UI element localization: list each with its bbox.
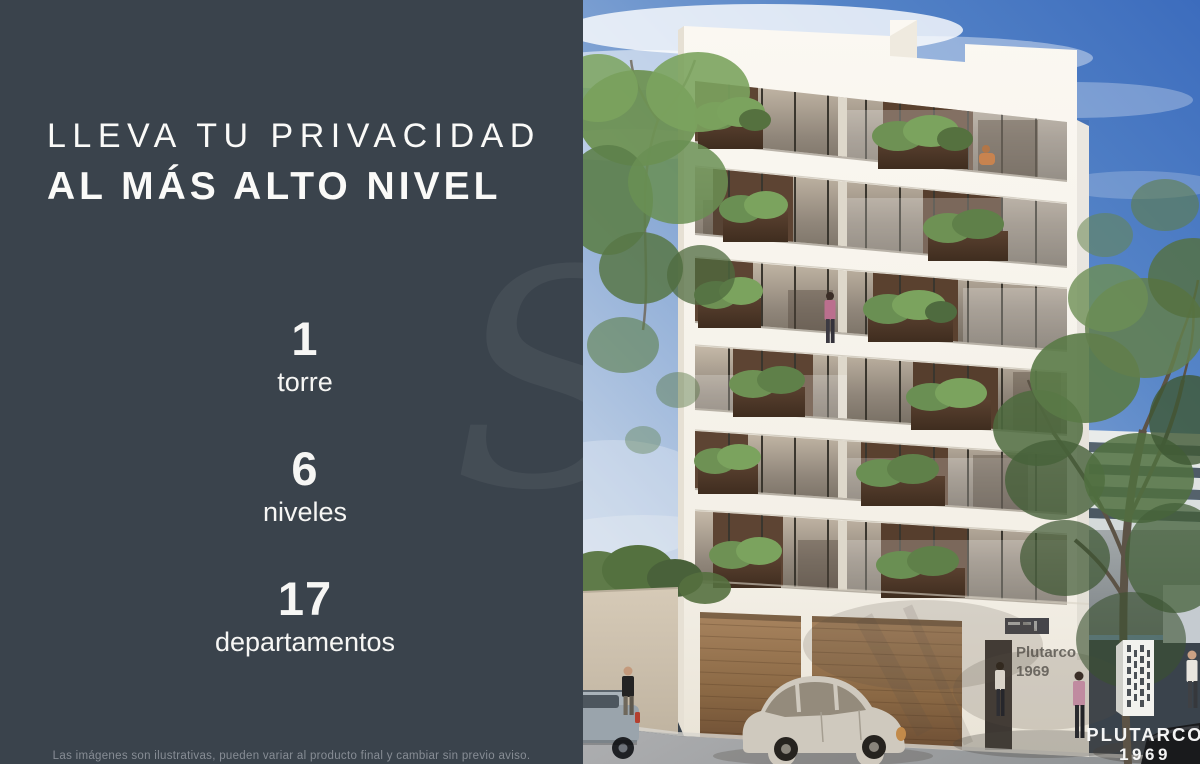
stat-towers-value: 1 [20, 313, 583, 366]
stat-levels-value: 6 [20, 443, 583, 496]
stat-apartments: 17 departamentos [20, 573, 583, 658]
building-render-svg: Plutarco 1969 [583, 0, 1200, 764]
stat-levels: 6 niveles [20, 443, 583, 528]
logo-name: PLUTARCO [1086, 724, 1200, 745]
stats-list: 1 torre 6 niveles 17 departamentos [20, 313, 583, 703]
pedestrian-doorway [995, 662, 1005, 716]
text-panel: S LLEVA TU PRIVACIDAD AL MÁS ALTO NIVEL … [0, 0, 583, 764]
disclaimer-text: Las imágenes son ilustrativas, pueden va… [0, 750, 583, 762]
stat-towers: 1 torre [20, 313, 583, 398]
stat-apartments-value: 17 [20, 573, 583, 626]
stat-apartments-label: departamentos [20, 626, 583, 658]
logo-year: 1969 [1119, 745, 1171, 764]
stat-towers-label: torre [20, 366, 583, 398]
building-render-photo: Plutarco 1969 [583, 0, 1200, 764]
headline-line2: AL MÁS ALTO NIVEL [47, 164, 541, 210]
headline-line1: LLEVA TU PRIVACIDAD [47, 114, 541, 158]
ad-canvas: S LLEVA TU PRIVACIDAD AL MÁS ALTO NIVEL … [0, 0, 1200, 764]
pedestrian-right [1187, 651, 1198, 709]
stat-levels-label: niveles [20, 496, 583, 528]
headline: LLEVA TU PRIVACIDAD AL MÁS ALTO NIVEL [47, 114, 541, 210]
